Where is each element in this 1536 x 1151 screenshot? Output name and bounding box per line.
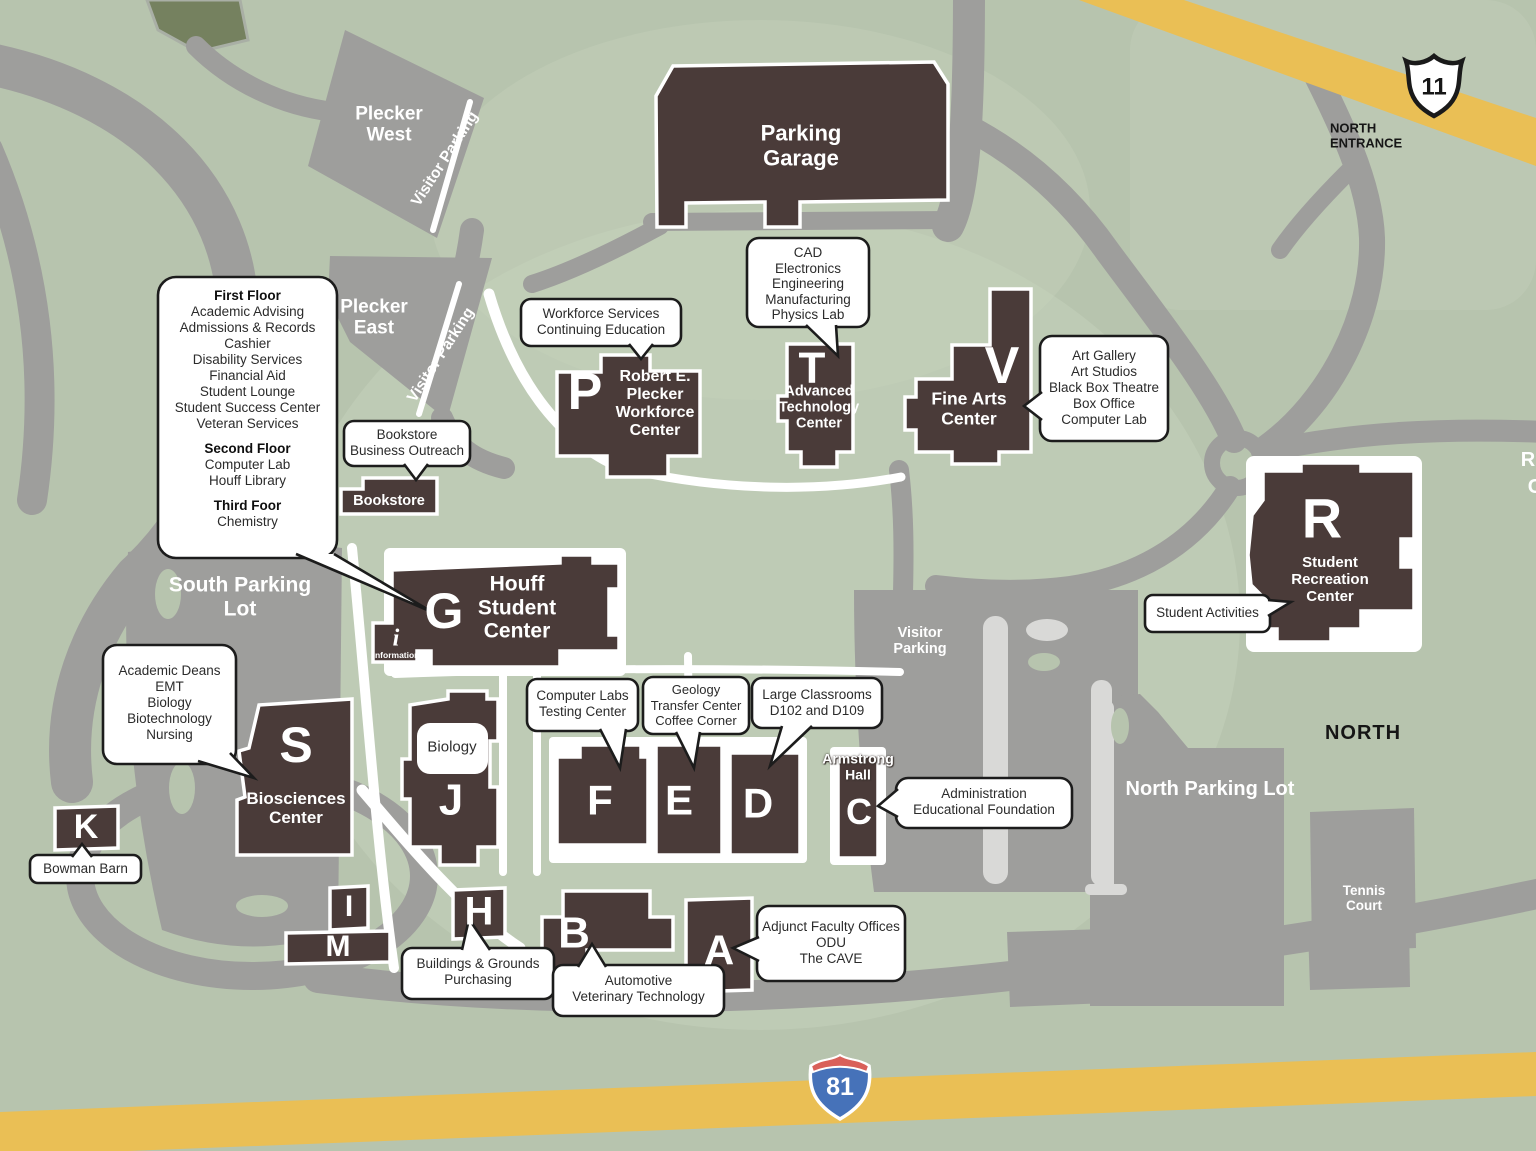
callout-automotive: Automotive Veterinary Technology [555,973,722,1005]
south-lot-label: South Parking Lot [160,573,320,620]
lot-bottom-1 [1007,929,1108,1007]
letter-e: E [665,776,693,823]
callout-student-activities: Student Activities [1147,605,1268,620]
callout-computer-labs: Computer Labs Testing Center [529,688,636,720]
letter-v: V [985,337,1020,395]
letter-h: H [465,890,494,935]
bookstore-name: Bookstore [353,493,425,509]
letter-f: F [587,776,613,823]
callout-buildings-grounds: Buildings & Grounds Purchasing [404,956,552,988]
s-name: Biosciences Center [229,789,364,827]
parking-garage-label: Parking Garage [736,121,866,170]
callout-large-classrooms: Large Classrooms D102 and D109 [754,687,880,719]
letter-b: B [558,908,590,957]
edge-partial-label-top: R [1521,449,1535,471]
lot-bottom-3 [1308,924,1410,990]
i81-number: 81 [826,1073,854,1101]
armstrong-hall-label: Armstrong Hall [814,751,902,782]
callout-fine-arts: Art Gallery Art Studios Black Box Theatr… [1042,348,1166,428]
letter-s: S [279,717,312,773]
v-name: Fine Arts Center [919,389,1019,428]
callout-bookstore: Bookstore Business Outreach [346,427,468,459]
g-name: Houff Student Center [452,573,582,644]
callout-adjunct: Adjunct Faculty Offices ODU The CAVE [759,919,903,967]
campus-map: Parking Garage Plecker West Plecker East… [0,0,1536,1151]
letter-i: I [345,890,353,924]
r-name: Student Recreation Center [1283,555,1378,605]
callout-workforce: Workforce Services Continuing Education [523,306,679,338]
callout-geology: Geology Transfer Center Coffee Corner [645,682,747,729]
north-entrance-label: NORTH ENTRANCE [1330,121,1422,150]
tennis-court-label: Tennis Court [1329,883,1399,913]
letter-p: P [568,363,603,421]
us11-number: 11 [1421,75,1446,102]
road-garage-south [652,220,952,222]
visitor-parking-label-center: Visitor Parking [875,625,965,657]
letter-a: A [704,926,734,973]
north-label: NORTH [1325,722,1401,744]
t-name: Advanced Technology Center [769,384,869,433]
plecker-east-label: Plecker East [332,297,417,340]
letter-j: J [439,775,463,824]
letter-m: M [326,930,351,964]
edge-partial-label-bottom: C [1528,476,1536,498]
information-label: information [373,651,420,661]
information-icon: i [393,626,400,653]
biology-tag-label: Biology [427,740,476,757]
letter-d: D [743,779,773,826]
letter-r: R [1302,488,1342,551]
letter-c: C [846,792,872,832]
plecker-west-label: Plecker West [347,104,432,147]
callout-administration: Administration Educational Foundation [898,786,1070,818]
letter-k: K [74,808,99,846]
callout-first-floor: First Floor Academic Advising Admissions… [160,288,335,530]
callout-cad: CAD Electronics Engineering Manufacturin… [749,245,867,323]
lot-bottom-2 [1122,925,1282,1001]
callout-bowman-barn: Bowman Barn [32,861,139,876]
north-lot-label: North Parking Lot [1125,778,1295,800]
callout-academic-deans: Academic Deans EMT Biology Biotechnology… [105,663,234,743]
p-name: Robert E. Plecker Workforce Center [609,368,701,440]
road-campus-east [899,470,904,592]
